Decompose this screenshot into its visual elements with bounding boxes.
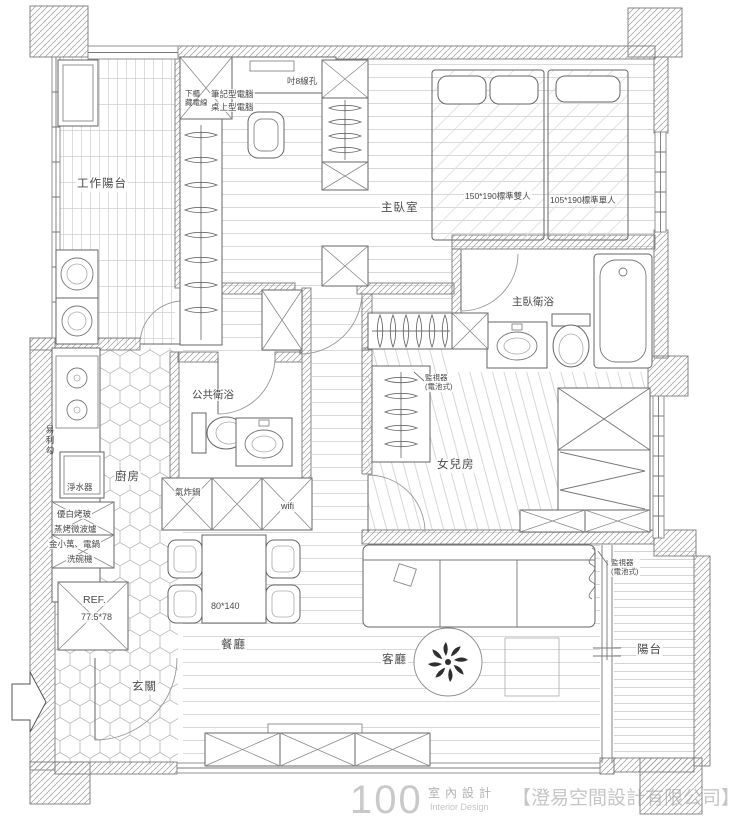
label-steam-oven: 蒸烤微波爐 (53, 524, 98, 534)
wall-hall-east (302, 288, 311, 488)
wardrobe-middle (322, 60, 368, 286)
closet-top (368, 313, 488, 349)
label-dining: 餐廳 (220, 639, 247, 653)
label-daughter-room: 女兒房 (436, 459, 476, 473)
floor-plan: 100 室內設計 Interior Design 【澄易空間設計有限公司】 (0, 0, 729, 825)
watermark-logo: 100 (350, 778, 423, 822)
desk-monitor (250, 61, 294, 71)
wall-balcony-south (614, 758, 694, 772)
label-public-bath: 公共衛浴 (191, 389, 235, 401)
wall-balcony-right (694, 556, 710, 766)
label-kitchen: 廚房 (114, 471, 141, 485)
wall-publicbath-north-2 (275, 352, 302, 362)
closet-left (372, 366, 430, 462)
label-fridge: REF. (82, 594, 107, 606)
label-laptop: 筆記型電腦 (210, 89, 255, 99)
desk-chair-seat (254, 119, 278, 151)
label-single-bed: 105*190標準單人 (549, 195, 617, 205)
label-living: 客廳 (381, 654, 408, 668)
wall-corner-top-left (30, 6, 88, 57)
watermark-cn: 室內設計 (428, 785, 496, 800)
label-double-bed: 150*190標準雙人 (464, 191, 532, 201)
wall-column-right (648, 356, 688, 396)
wall-daughter-west (362, 348, 372, 474)
label-monitor-cam-2: 監視器 (電池式) (610, 559, 640, 577)
label-hook-rail: 易利勾 (44, 425, 56, 457)
wall-right-1 (654, 57, 668, 133)
ceiling-fan (414, 628, 482, 696)
label-wire-hole: 吋8線孔 (286, 76, 318, 86)
washer (56, 250, 98, 298)
toilet-bowl (553, 325, 589, 367)
label-glass-panel: 優白烤玻 (56, 509, 92, 519)
toilet-tank (552, 314, 590, 326)
stove (56, 356, 98, 428)
label-water-purifier: 淨水器 (66, 482, 94, 492)
faucet (512, 324, 522, 330)
toilet-tank (192, 413, 206, 453)
label-cabinet-note: 下櫃 藏電線 (184, 90, 209, 108)
label-table-size: 80*140 (210, 601, 241, 612)
label-rice-cooker: 金小萬、電鍋 (48, 539, 101, 549)
label-master-bedroom: 主臥室 (380, 202, 420, 216)
watermark-en: Interior Design (430, 802, 489, 812)
wardrobe-right (558, 388, 650, 512)
label-fridge-size: 77.5*78 (80, 612, 113, 623)
sofa (363, 545, 595, 627)
wall-masterbath-west (452, 249, 461, 315)
faucet (259, 420, 269, 426)
label-desktop-pc: 桌上型電腦 (210, 102, 255, 112)
floor-plan-svg: 100 室內設計 Interior Design 【澄易空間設計有限公司】 (0, 0, 729, 825)
bathtub (594, 254, 652, 368)
pillow (556, 76, 620, 102)
label-balcony: 陽台 (636, 644, 663, 658)
label-air-fryer: 氣炸鍋 (174, 487, 202, 497)
label-dishwasher: 洗碗機 (66, 554, 94, 564)
label-entry: 玄關 (131, 681, 158, 695)
wall-right-2 (654, 230, 668, 358)
label-work-balcony: 工作陽台 (76, 178, 128, 192)
label-monitor-cam-1: 監視器 (電池式) (424, 374, 454, 392)
wardrobe-left (180, 119, 222, 345)
wall-publicbath-west (170, 352, 179, 488)
wall-publicbath-north-1 (178, 352, 218, 362)
wall-entry-south (55, 762, 177, 774)
label-master-bath: 主臥衛浴 (511, 296, 555, 308)
pillow (438, 76, 486, 104)
label-wifi: wifi (280, 501, 295, 512)
wall-bedroom-south-2 (357, 283, 454, 294)
pillow (490, 76, 538, 104)
